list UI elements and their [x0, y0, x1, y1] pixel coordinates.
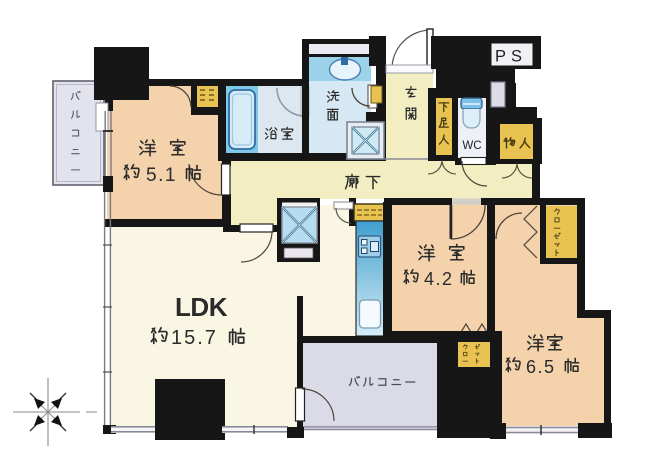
svg-text:WC: WC [462, 140, 481, 152]
svg-text:LDK: LDK [175, 292, 228, 322]
svg-text:5.1: 5.1 [146, 165, 177, 186]
svg-text:PS: PS [495, 48, 527, 66]
svg-text:15.7: 15.7 [171, 327, 218, 349]
svg-text:4.2: 4.2 [424, 269, 454, 289]
svg-text:6.5: 6.5 [526, 357, 556, 377]
